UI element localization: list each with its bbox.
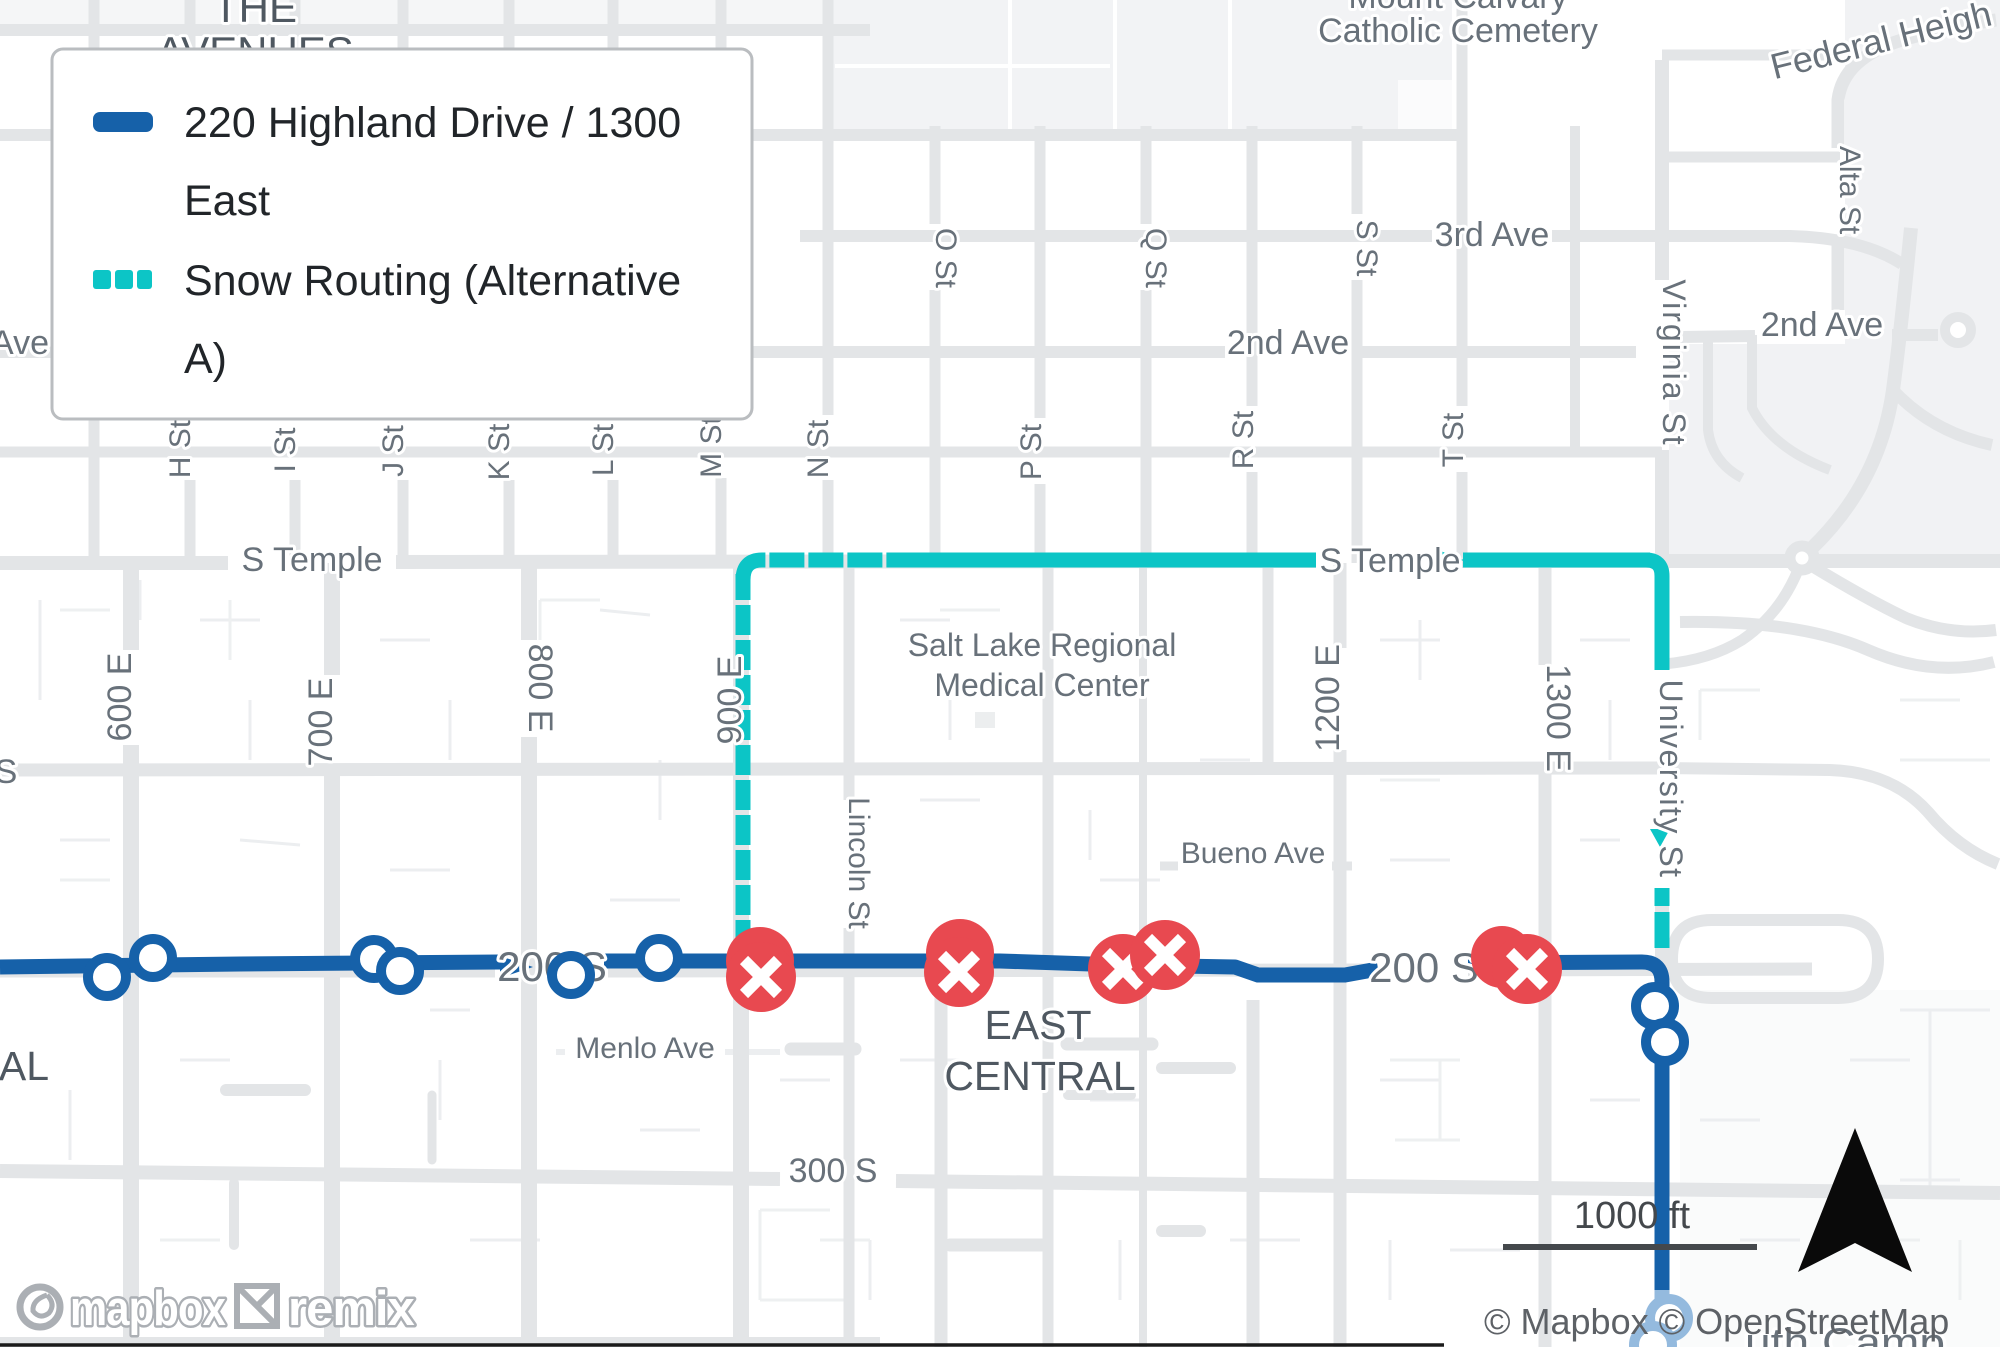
svg-text:H St: H St (164, 419, 197, 478)
svg-text:University St: University St (1653, 679, 1689, 878)
svg-text:R St: R St (1227, 410, 1260, 469)
svg-text:Bueno Ave: Bueno Ave (1181, 837, 1326, 870)
svg-text:1300 E: 1300 E (1539, 664, 1577, 772)
svg-text:T St: T St (1437, 412, 1470, 467)
svg-text:AL: AL (0, 1043, 49, 1089)
svg-text:K St: K St (483, 423, 516, 480)
svg-text:900 E: 900 E (711, 656, 749, 745)
svg-text:I St: I St (269, 427, 302, 473)
svg-text:J St: J St (377, 424, 410, 476)
svg-text:S Temple: S Temple (1319, 542, 1460, 580)
svg-text:800 E: 800 E (521, 644, 559, 733)
svg-text:Alta St: Alta St (1833, 146, 1866, 235)
svg-text:300 S: 300 S (789, 1152, 878, 1190)
svg-text:S Temple: S Temple (241, 541, 382, 579)
svg-text:EAST: EAST (984, 1002, 1091, 1048)
svg-text:1200 E: 1200 E (1309, 644, 1347, 752)
svg-text:East: East (184, 177, 270, 225)
svg-text:2nd Ave: 2nd Ave (1761, 306, 1883, 344)
svg-text:Virginia St: Virginia St (1656, 279, 1692, 446)
svg-text:N St: N St (802, 419, 835, 478)
svg-text:Salt Lake Regional: Salt Lake Regional (908, 627, 1177, 663)
svg-text:200 S: 200 S (1369, 944, 1479, 991)
svg-text:220 Highland Drive / 1300: 220 Highland Drive / 1300 (184, 99, 681, 147)
svg-text:S: S (0, 753, 17, 791)
svg-text:3rd Ave: 3rd Ave (1435, 216, 1550, 254)
svg-text:Ave: Ave (0, 324, 49, 362)
svg-text:A): A) (184, 335, 227, 383)
svg-text:THE: THE (213, 0, 297, 31)
svg-text:700 E: 700 E (302, 678, 340, 767)
svg-text:600 E: 600 E (101, 653, 139, 742)
svg-text:O St: O St (929, 228, 962, 289)
svg-text:1000 ft: 1000 ft (1574, 1195, 1691, 1237)
svg-text:mapbox: mapbox (70, 1282, 226, 1336)
svg-text:2nd Ave: 2nd Ave (1227, 324, 1349, 362)
svg-text:remix: remix (288, 1282, 415, 1336)
svg-text:P St: P St (1015, 423, 1048, 480)
svg-text:Medical Center: Medical Center (934, 667, 1150, 703)
svg-text:© Mapbox © OpenStreetMap: © Mapbox © OpenStreetMap (1484, 1301, 1949, 1342)
svg-text:Snow Routing (Alternative: Snow Routing (Alternative (184, 257, 681, 305)
svg-text:Catholic Cemetery: Catholic Cemetery (1318, 12, 1598, 50)
svg-text:M St: M St (695, 416, 728, 478)
svg-text:Menlo Ave: Menlo Ave (575, 1032, 715, 1065)
svg-text:Lincoln St: Lincoln St (842, 797, 875, 929)
svg-text:S St: S St (1350, 220, 1383, 277)
svg-text:Q St: Q St (1139, 228, 1172, 289)
svg-text:L St: L St (587, 423, 620, 476)
svg-text:CENTRAL: CENTRAL (944, 1053, 1135, 1099)
